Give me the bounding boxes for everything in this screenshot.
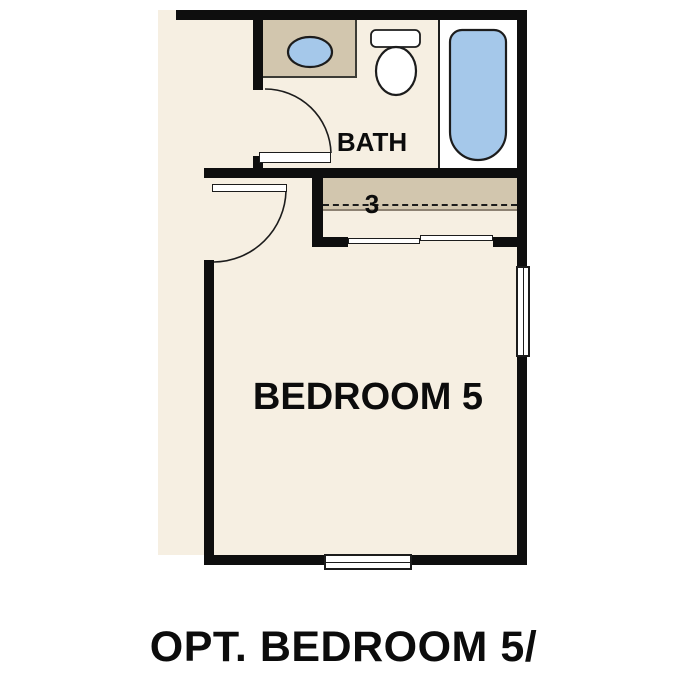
bath-room-label: BATH 3 (302, 96, 442, 251)
bedroom-door-swing (214, 191, 286, 262)
bath-room-label-line2: 3 (302, 189, 442, 220)
bath-room-label-line1: BATH (302, 127, 442, 158)
bedroom-room-label: BEDROOM 5 (203, 377, 533, 417)
plan-caption: OPT. BEDROOM 5/ BATH 3 (0, 583, 687, 687)
toilet-tank (371, 30, 420, 47)
bathtub (450, 30, 506, 160)
floor-plan: BATH 3 BEDROOM 5 OPT. BEDROOM 5/ BATH 3 (0, 0, 687, 687)
toilet-bowl (376, 47, 416, 95)
plan-caption-line1: OPT. BEDROOM 5/ (0, 626, 687, 669)
sink (288, 37, 332, 67)
